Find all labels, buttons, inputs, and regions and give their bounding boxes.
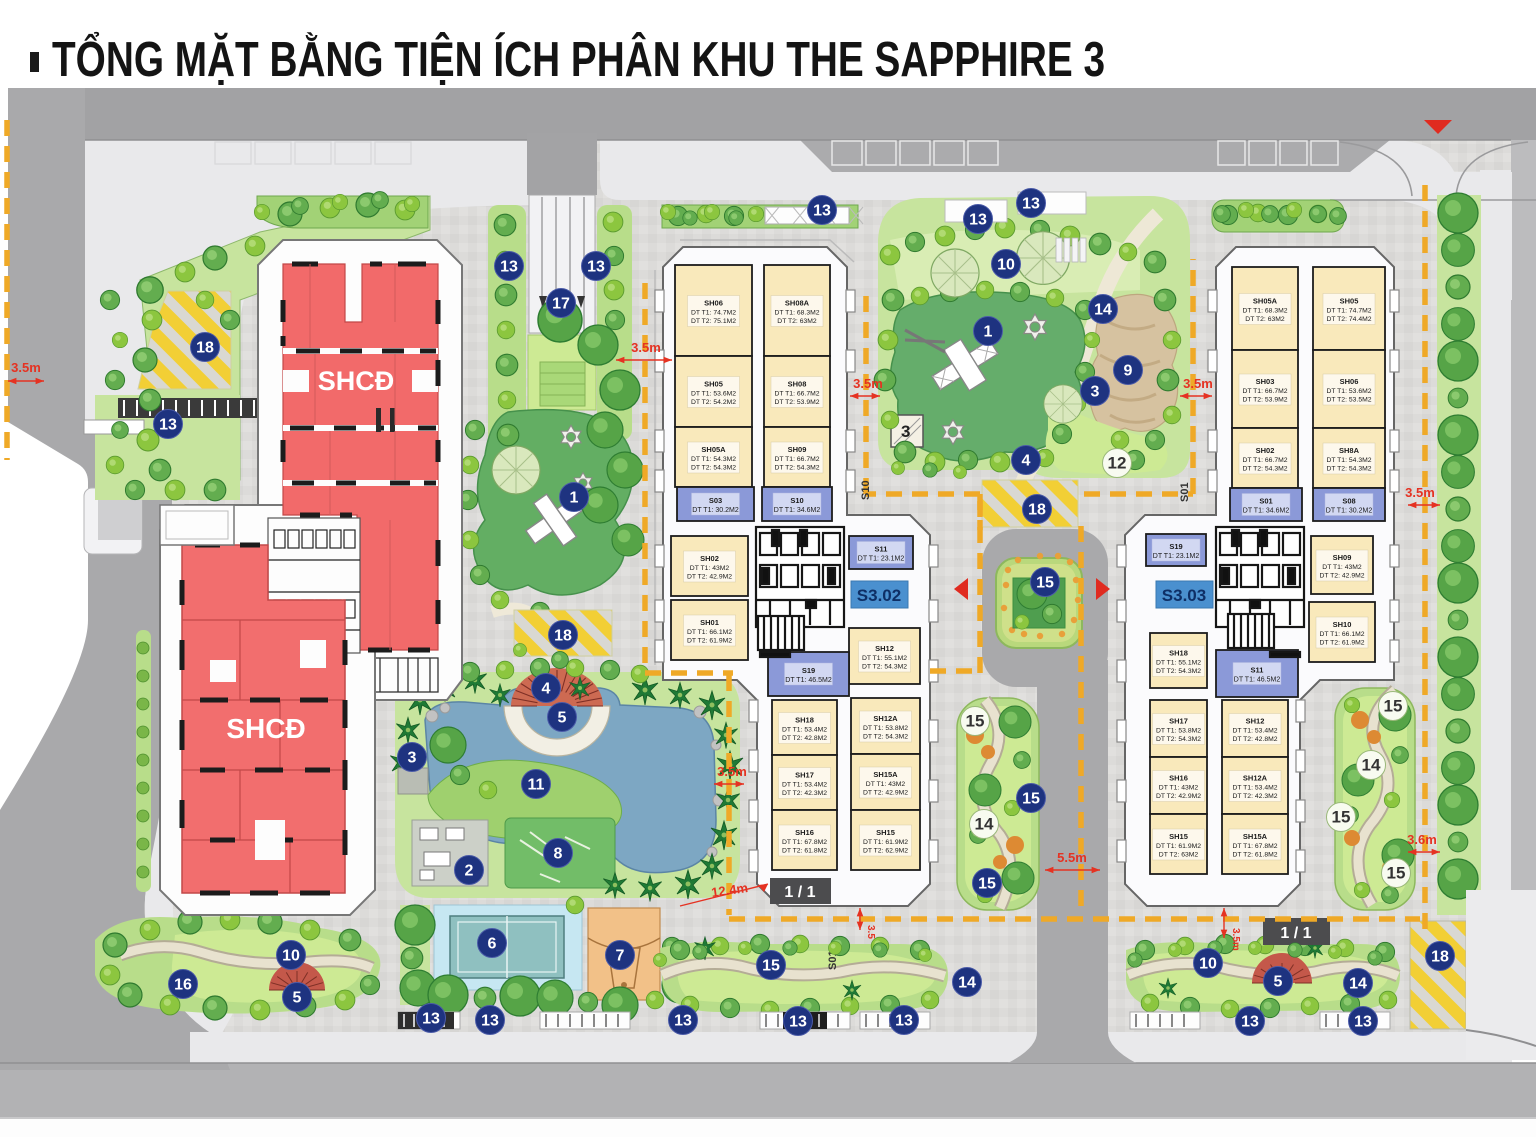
svg-text:SH05A: SH05A bbox=[1253, 297, 1278, 306]
svg-text:DT T2: 42.9M2: DT T2: 42.9M2 bbox=[1319, 573, 1364, 580]
svg-text:DT T2: 63M2: DT T2: 63M2 bbox=[777, 318, 817, 325]
svg-text:DT T1: 55.1M2: DT T1: 55.1M2 bbox=[1156, 660, 1201, 667]
svg-text:5: 5 bbox=[1274, 974, 1283, 991]
svg-text:13: 13 bbox=[500, 259, 518, 276]
svg-text:SH15: SH15 bbox=[876, 828, 895, 837]
svg-text:15: 15 bbox=[966, 712, 985, 731]
svg-text:DT T1: 43M2: DT T1: 43M2 bbox=[690, 565, 730, 572]
svg-text:DT T2: 54.3M2: DT T2: 54.3M2 bbox=[1242, 466, 1287, 473]
svg-text:TỔNG MẶT BẰNG TIỆN ÍCH PHÂN KH: TỔNG MẶT BẰNG TIỆN ÍCH PHÂN KHU THE SAPP… bbox=[52, 32, 1105, 87]
svg-text:SH16: SH16 bbox=[795, 828, 814, 837]
svg-text:8: 8 bbox=[554, 846, 563, 863]
svg-text:13: 13 bbox=[1354, 1014, 1372, 1031]
svg-text:4: 4 bbox=[1022, 453, 1031, 470]
svg-text:13: 13 bbox=[789, 1014, 807, 1031]
svg-text:3.5: 3.5 bbox=[865, 925, 876, 939]
svg-text:DT T2: 54.3M2: DT T2: 54.3M2 bbox=[1326, 466, 1371, 473]
svg-text:3.6m: 3.6m bbox=[1407, 832, 1437, 847]
svg-text:17: 17 bbox=[552, 296, 570, 313]
svg-text:SH06: SH06 bbox=[704, 299, 723, 308]
svg-text:DT T1: 66.7M2: DT T1: 66.7M2 bbox=[774, 391, 819, 398]
svg-text:18: 18 bbox=[1431, 949, 1449, 966]
svg-text:DT T2: 54.3M2: DT T2: 54.3M2 bbox=[862, 664, 907, 671]
svg-text:11: 11 bbox=[528, 777, 545, 794]
svg-text:13: 13 bbox=[813, 203, 831, 220]
svg-text:SH12A: SH12A bbox=[873, 714, 898, 723]
svg-text:10: 10 bbox=[997, 257, 1015, 274]
svg-text:S3.02: S3.02 bbox=[857, 586, 901, 605]
svg-text:14: 14 bbox=[1362, 756, 1381, 775]
svg-text:DT T1: 53.6M2: DT T1: 53.6M2 bbox=[1326, 388, 1371, 395]
svg-text:14: 14 bbox=[958, 975, 976, 992]
svg-text:DT T1: 54.3M2: DT T1: 54.3M2 bbox=[1326, 457, 1371, 464]
svg-text:SH17: SH17 bbox=[795, 771, 814, 780]
svg-text:18: 18 bbox=[196, 340, 214, 357]
svg-text:DT T2: 61.8M2: DT T2: 61.8M2 bbox=[782, 848, 827, 855]
svg-text:S01: S01 bbox=[1179, 482, 1191, 502]
svg-text:DT T2: 62.9M2: DT T2: 62.9M2 bbox=[863, 848, 908, 855]
svg-text:13: 13 bbox=[895, 1013, 913, 1030]
svg-text:SH09: SH09 bbox=[1333, 553, 1352, 562]
svg-text:13: 13 bbox=[587, 259, 605, 276]
svg-text:DT T1: 74.7M2: DT T1: 74.7M2 bbox=[691, 310, 736, 317]
svg-text:3.5m: 3.5m bbox=[717, 764, 747, 779]
svg-text:DT T1: 66.7M2: DT T1: 66.7M2 bbox=[1242, 388, 1287, 395]
svg-text:DT T1: 66.1M2: DT T1: 66.1M2 bbox=[1319, 631, 1364, 638]
svg-text:SH17: SH17 bbox=[1169, 717, 1188, 726]
svg-text:SH10: SH10 bbox=[1333, 620, 1352, 629]
svg-text:DT T2: 61.9M2: DT T2: 61.9M2 bbox=[687, 638, 732, 645]
svg-text:18: 18 bbox=[554, 628, 572, 645]
svg-text:DT T1: 30.2M2: DT T1: 30.2M2 bbox=[692, 507, 739, 514]
svg-text:DT T2: 54.3M2: DT T2: 54.3M2 bbox=[691, 465, 736, 472]
svg-text:DT T2: 42.9M2: DT T2: 42.9M2 bbox=[1156, 793, 1201, 800]
svg-text:SH18: SH18 bbox=[795, 716, 814, 725]
svg-text:DT T1: 30.2M2: DT T1: 30.2M2 bbox=[1326, 508, 1373, 515]
svg-text:SH15: SH15 bbox=[1169, 832, 1188, 841]
svg-text:DT T1: 53.6M2: DT T1: 53.6M2 bbox=[691, 391, 736, 398]
svg-text:15: 15 bbox=[978, 876, 996, 893]
svg-text:DT T1: 66.1M2: DT T1: 66.1M2 bbox=[687, 629, 732, 636]
svg-text:DT T2: 61.9M2: DT T2: 61.9M2 bbox=[1319, 640, 1364, 647]
svg-text:DT T1: 34.6M2: DT T1: 34.6M2 bbox=[1243, 508, 1290, 515]
svg-text:1 / 1: 1 / 1 bbox=[784, 884, 815, 901]
svg-text:DT T1: 43M2: DT T1: 43M2 bbox=[866, 781, 906, 788]
svg-text:7: 7 bbox=[616, 948, 625, 965]
svg-text:DT T2: 54.3M2: DT T2: 54.3M2 bbox=[774, 465, 819, 472]
svg-text:3.5m: 3.5m bbox=[631, 340, 661, 355]
svg-text:5: 5 bbox=[293, 990, 302, 1007]
svg-text:DT T1: 53.4M2: DT T1: 53.4M2 bbox=[1232, 728, 1277, 735]
svg-text:SH03: SH03 bbox=[1256, 377, 1275, 386]
svg-text:10: 10 bbox=[1199, 956, 1217, 973]
svg-text:3: 3 bbox=[901, 422, 910, 441]
svg-text:SH12: SH12 bbox=[1246, 717, 1265, 726]
svg-text:SH15A: SH15A bbox=[1243, 832, 1268, 841]
svg-text:DT T1: 46.5M2: DT T1: 46.5M2 bbox=[1234, 677, 1281, 684]
svg-text:DT T1: 53.4M2: DT T1: 53.4M2 bbox=[1232, 785, 1277, 792]
svg-text:3: 3 bbox=[1091, 384, 1100, 401]
svg-text:SH12A: SH12A bbox=[1243, 774, 1268, 783]
svg-text:DT T1: 55.1M2: DT T1: 55.1M2 bbox=[862, 655, 907, 662]
svg-text:13: 13 bbox=[1241, 1014, 1259, 1031]
svg-text:DT T2: 42.3M2: DT T2: 42.3M2 bbox=[1232, 793, 1277, 800]
svg-text:DT T1: 66.7M2: DT T1: 66.7M2 bbox=[774, 456, 819, 463]
svg-text:DT T2: 42.8M2: DT T2: 42.8M2 bbox=[1232, 736, 1277, 743]
svg-text:DT T1: 68.3M2: DT T1: 68.3M2 bbox=[1242, 308, 1287, 315]
svg-text:DT T1: 67.8M2: DT T1: 67.8M2 bbox=[782, 839, 827, 846]
svg-text:DT T2: 54.3M2: DT T2: 54.3M2 bbox=[1156, 668, 1201, 675]
svg-text:DT T2: 53.5M2: DT T2: 53.5M2 bbox=[1326, 397, 1371, 404]
svg-text:15: 15 bbox=[1332, 808, 1351, 827]
svg-text:14: 14 bbox=[1349, 976, 1367, 993]
svg-text:SH15A: SH15A bbox=[873, 770, 898, 779]
svg-text:3.5m: 3.5m bbox=[1183, 376, 1213, 391]
svg-text:DT T1: 61.9M2: DT T1: 61.9M2 bbox=[1156, 843, 1201, 850]
svg-text:15: 15 bbox=[1036, 575, 1054, 592]
svg-text:16: 16 bbox=[174, 977, 192, 994]
svg-text:DT T2: 54.3M2: DT T2: 54.3M2 bbox=[1156, 736, 1201, 743]
svg-text:S19: S19 bbox=[1169, 542, 1182, 551]
svg-text:S08: S08 bbox=[1342, 497, 1355, 506]
svg-text:4: 4 bbox=[542, 681, 551, 698]
svg-text:SHCĐ: SHCĐ bbox=[226, 713, 305, 744]
svg-text:DT T2: 74.4M2: DT T2: 74.4M2 bbox=[1326, 316, 1371, 323]
svg-text:5: 5 bbox=[558, 710, 567, 727]
svg-text:13: 13 bbox=[481, 1013, 499, 1030]
svg-text:SH05: SH05 bbox=[704, 380, 723, 389]
svg-text:S01: S01 bbox=[1259, 497, 1272, 506]
svg-text:DT T1: 68.3M2: DT T1: 68.3M2 bbox=[774, 310, 819, 317]
svg-text:13: 13 bbox=[159, 417, 177, 434]
svg-text:1 / 1: 1 / 1 bbox=[1280, 925, 1311, 942]
svg-text:13: 13 bbox=[1022, 196, 1040, 213]
svg-text:SH8A: SH8A bbox=[1339, 446, 1360, 455]
svg-text:S3.03: S3.03 bbox=[1162, 586, 1206, 605]
svg-text:SH18: SH18 bbox=[1169, 649, 1188, 658]
svg-text:DT T2: 75.1M2: DT T2: 75.1M2 bbox=[691, 318, 736, 325]
svg-text:SH02: SH02 bbox=[1256, 446, 1275, 455]
svg-text:DT T1: 53.4M2: DT T1: 53.4M2 bbox=[782, 782, 827, 789]
svg-text:14: 14 bbox=[1094, 302, 1112, 319]
svg-text:DT T1: 66.7M2: DT T1: 66.7M2 bbox=[1242, 457, 1287, 464]
svg-text:S19: S19 bbox=[802, 666, 815, 675]
svg-text:S10: S10 bbox=[860, 480, 872, 500]
svg-text:3.5m: 3.5m bbox=[853, 376, 883, 391]
svg-text:DT T1: 53.4M2: DT T1: 53.4M2 bbox=[782, 727, 827, 734]
svg-text:5.5m: 5.5m bbox=[1057, 850, 1087, 865]
svg-text:SH08: SH08 bbox=[788, 380, 807, 389]
svg-text:12: 12 bbox=[1108, 454, 1127, 473]
svg-text:DT T2: 54.2M2: DT T2: 54.2M2 bbox=[691, 399, 736, 406]
svg-text:6: 6 bbox=[488, 936, 497, 953]
svg-text:3.5m: 3.5m bbox=[1405, 485, 1435, 500]
svg-text:SH16: SH16 bbox=[1169, 774, 1188, 783]
svg-text:DT T1: 61.9M2: DT T1: 61.9M2 bbox=[863, 839, 908, 846]
svg-text:SHCĐ: SHCĐ bbox=[318, 366, 395, 396]
svg-text:DT T1: 23.1M2: DT T1: 23.1M2 bbox=[858, 556, 905, 563]
svg-text:SH12: SH12 bbox=[875, 644, 894, 653]
svg-text:1: 1 bbox=[570, 490, 579, 507]
svg-text:DT T2: 63M2: DT T2: 63M2 bbox=[1159, 852, 1199, 859]
svg-text:SH05A: SH05A bbox=[701, 445, 726, 454]
svg-text:2: 2 bbox=[465, 863, 474, 880]
svg-text:15: 15 bbox=[1387, 864, 1406, 883]
svg-text:18: 18 bbox=[1028, 502, 1046, 519]
svg-text:13: 13 bbox=[969, 212, 987, 229]
svg-text:SH02: SH02 bbox=[700, 554, 719, 563]
svg-text:S11: S11 bbox=[875, 545, 888, 554]
svg-text:DT T1: 53.8M2: DT T1: 53.8M2 bbox=[863, 725, 908, 732]
svg-text:DT T2: 54.3M2: DT T2: 54.3M2 bbox=[863, 734, 908, 741]
svg-text:15: 15 bbox=[1022, 791, 1040, 808]
svg-text:DT T1: 74.7M2: DT T1: 74.7M2 bbox=[1326, 308, 1371, 315]
svg-text:3.5m: 3.5m bbox=[1230, 928, 1241, 951]
svg-text:3: 3 bbox=[408, 750, 417, 767]
svg-text:DT T1: 34.6M2: DT T1: 34.6M2 bbox=[774, 507, 821, 514]
svg-text:DT T2: 61.8M2: DT T2: 61.8M2 bbox=[1232, 852, 1277, 859]
svg-text:3.5m: 3.5m bbox=[11, 360, 41, 375]
svg-text:SH06: SH06 bbox=[1340, 377, 1359, 386]
svg-text:15: 15 bbox=[762, 958, 780, 975]
svg-text:DT T2: 42.9M2: DT T2: 42.9M2 bbox=[863, 790, 908, 797]
svg-text:14: 14 bbox=[975, 815, 994, 834]
svg-text:DT T1: 53.8M2: DT T1: 53.8M2 bbox=[1156, 728, 1201, 735]
svg-text:15: 15 bbox=[1384, 697, 1403, 716]
svg-text:DT T2: 53.9M2: DT T2: 53.9M2 bbox=[1242, 397, 1287, 404]
svg-text:DT T1: 23.1M2: DT T1: 23.1M2 bbox=[1153, 553, 1200, 560]
svg-text:DT T2: 42.9M2: DT T2: 42.9M2 bbox=[687, 574, 732, 581]
svg-text:DT T2: 63M2: DT T2: 63M2 bbox=[1245, 316, 1285, 323]
svg-text:S10: S10 bbox=[790, 496, 803, 505]
svg-text:S03: S03 bbox=[709, 496, 722, 505]
svg-text:DT T1: 67.8M2: DT T1: 67.8M2 bbox=[1232, 843, 1277, 850]
svg-text:S11: S11 bbox=[1251, 666, 1264, 675]
svg-text:DT T1: 46.5M2: DT T1: 46.5M2 bbox=[785, 677, 832, 684]
svg-text:SH01: SH01 bbox=[700, 618, 719, 627]
svg-text:SH05: SH05 bbox=[1340, 297, 1359, 306]
svg-text:DT T2: 42.8M2: DT T2: 42.8M2 bbox=[782, 735, 827, 742]
svg-text:9: 9 bbox=[1124, 363, 1133, 380]
svg-text:DT T1: 43M2: DT T1: 43M2 bbox=[1159, 785, 1199, 792]
svg-text:DT T2: 42.3M2: DT T2: 42.3M2 bbox=[782, 790, 827, 797]
svg-text:DT T2: 53.9M2: DT T2: 53.9M2 bbox=[774, 399, 819, 406]
svg-text:DT T1: 54.3M2: DT T1: 54.3M2 bbox=[691, 456, 736, 463]
svg-text:DT T1: 43M2: DT T1: 43M2 bbox=[1322, 564, 1362, 571]
svg-text:13: 13 bbox=[422, 1011, 440, 1028]
svg-text:1: 1 bbox=[984, 324, 993, 341]
svg-text:SH08A: SH08A bbox=[785, 299, 810, 308]
svg-text:13: 13 bbox=[674, 1013, 692, 1030]
svg-text:SH09: SH09 bbox=[788, 445, 807, 454]
svg-text:10: 10 bbox=[282, 948, 300, 965]
